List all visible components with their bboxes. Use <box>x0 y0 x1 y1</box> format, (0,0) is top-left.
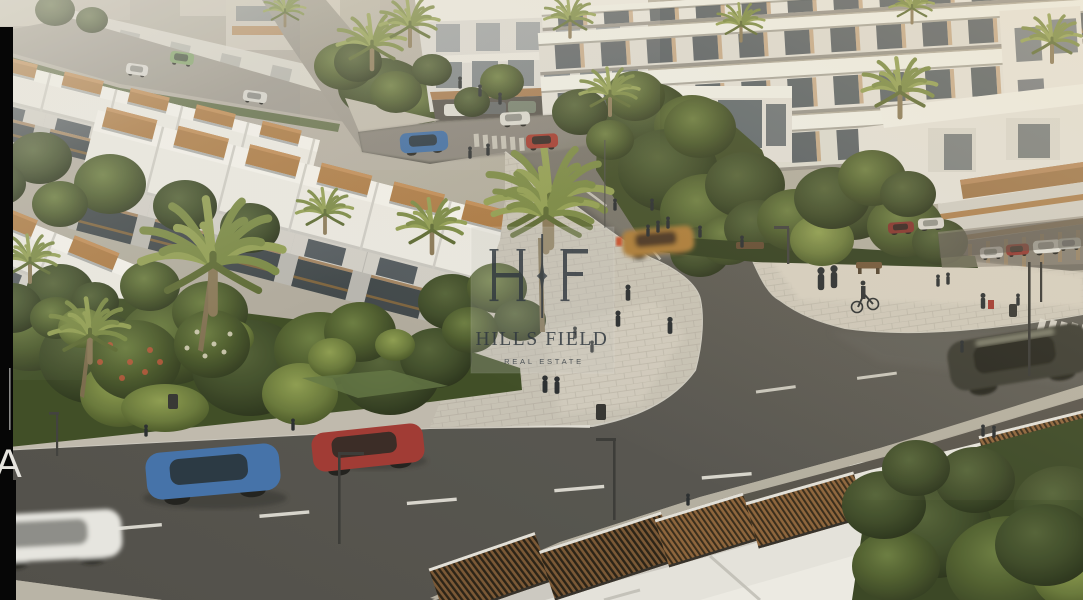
svg-text:HILLS FIELD: HILLS FIELD <box>476 329 609 350</box>
svg-text:A: A <box>0 442 22 486</box>
svg-text:REAL ESTATE: REAL ESTATE <box>504 357 584 366</box>
